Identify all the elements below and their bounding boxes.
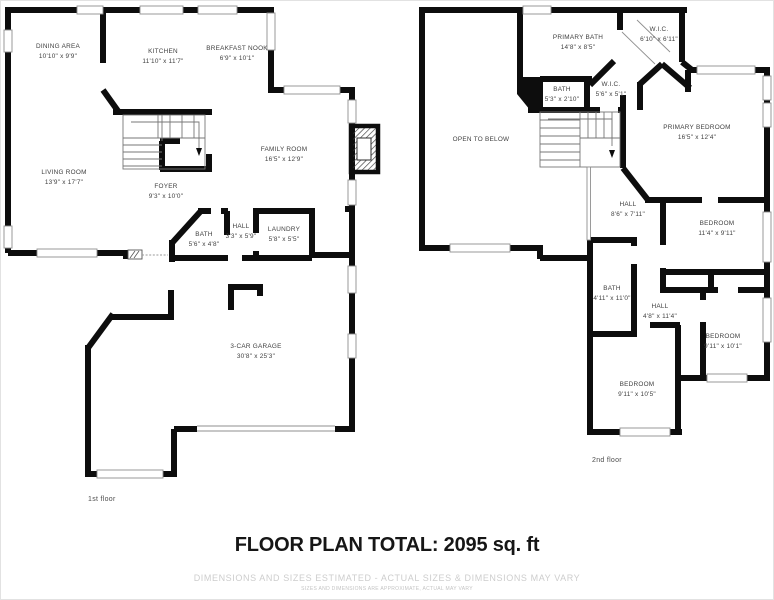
room-label: HALL4'8" x 11'4" (643, 302, 677, 322)
room-label: PRIMARY BATH14'8" x 8'5" (553, 33, 603, 53)
room-label: BEDROOM9'11" x 10'1" (704, 332, 742, 352)
floor-caption: 2nd floor (592, 457, 622, 464)
room-label: BEDROOM9'11" x 10'5" (618, 380, 656, 400)
floor-plan-page: 1st floorDINING AREA10'10" x 9'9"KITCHEN… (0, 0, 774, 600)
disclaimer-line1: DIMENSIONS AND SIZES ESTIMATED - ACTUAL … (0, 573, 774, 583)
room-label: FAMILY ROOM16'5" x 12'9" (261, 145, 308, 165)
room-label: KITCHEN11'10" x 11'7" (142, 47, 183, 67)
room-label: W.I.C.5'6" x 5'1" (596, 80, 627, 100)
room-label: BREAKFAST NOOK6'9" x 10'1" (206, 44, 268, 64)
room-label: OPEN TO BELOW (453, 135, 510, 145)
room-label: BATH4'11" x 11'0" (593, 284, 630, 304)
labels-layer: 1st floorDINING AREA10'10" x 9'9"KITCHEN… (0, 0, 774, 600)
room-label: FOYER9'3" x 10'0" (149, 182, 184, 202)
room-label: W.I.C.6'10" x 6'11" (640, 25, 678, 45)
disclaimer-line2: SIZES AND DIMENSIONS ARE APPROXIMATE, AC… (0, 586, 774, 592)
room-label: LIVING ROOM13'9" x 17'7" (41, 168, 86, 188)
room-label: DINING AREA10'10" x 9'9" (36, 42, 80, 62)
room-label: HALL3'3" x 5'9" (226, 222, 257, 242)
room-label: HALL8'6" x 7'11" (611, 200, 645, 220)
room-label: LAUNDRY5'8" x 5'5" (268, 225, 300, 245)
floor-caption: 1st floor (88, 496, 116, 503)
room-label: BEDROOM11'4" x 9'11" (698, 219, 735, 239)
floor-plan-total: FLOOR PLAN TOTAL: 2095 sq. ft (0, 534, 774, 557)
room-label: BATH5'6" x 4'8" (189, 230, 220, 250)
room-label: 3-CAR GARAGE30'8" x 25'3" (230, 342, 281, 362)
room-label: PRIMARY BEDROOM16'5" x 12'4" (663, 123, 730, 143)
room-label: BATH5'3" x 2'10" (545, 85, 580, 105)
